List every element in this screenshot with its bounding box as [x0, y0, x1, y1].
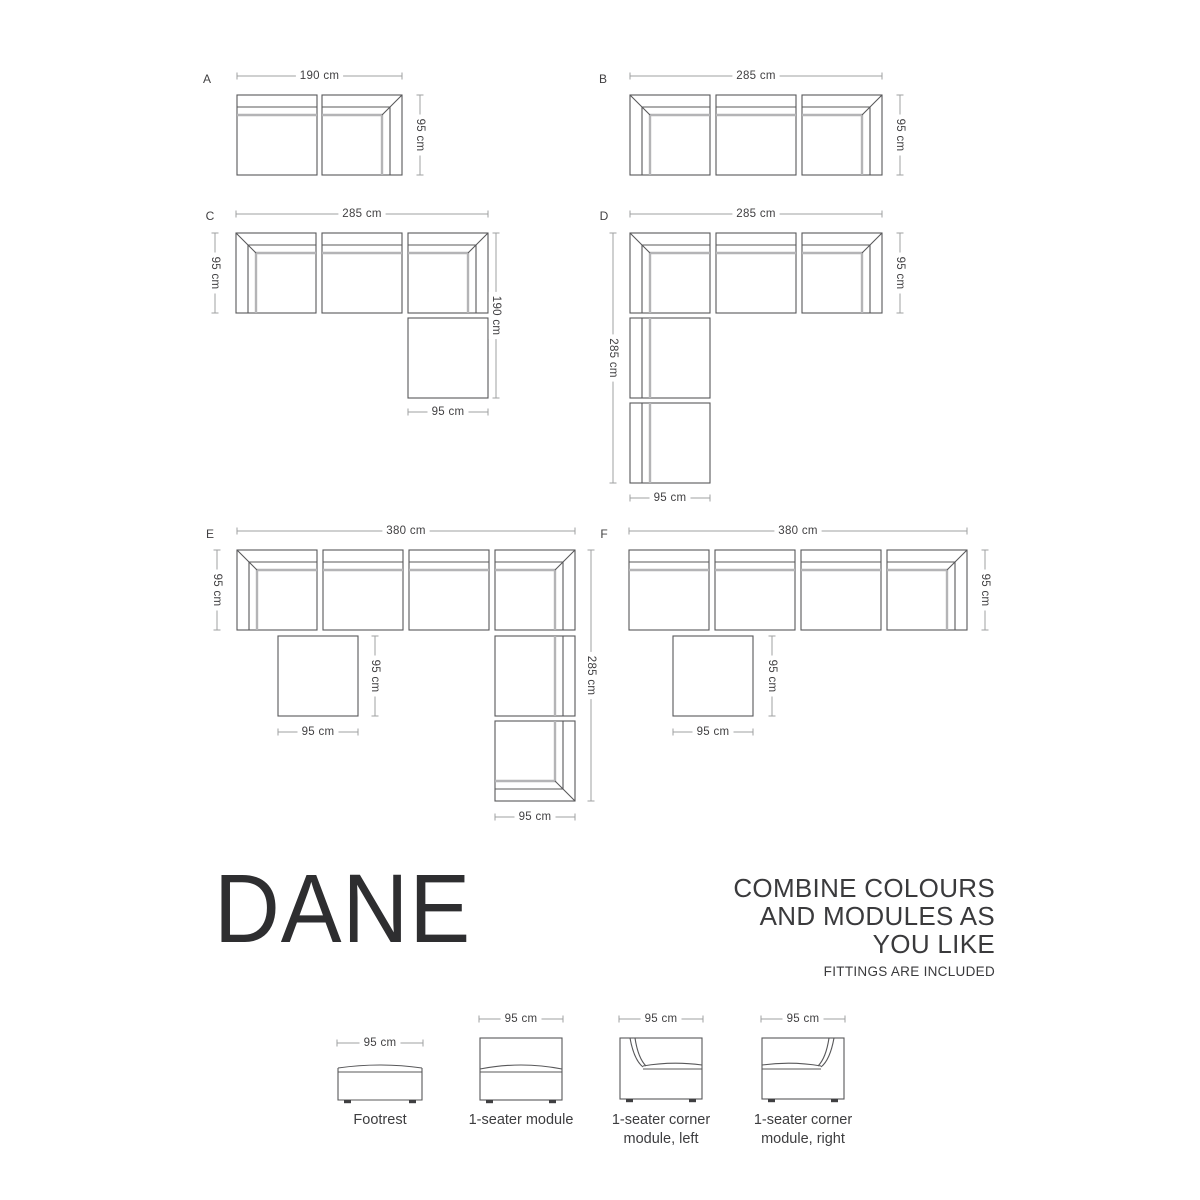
tagline-block: COMBINE COLOURS AND MODULES AS YOU LIKE … — [733, 874, 995, 980]
corner-module — [237, 550, 317, 630]
dane-module-sheet: A190 cm95 cmB285 cm95 cmC285 cm95 cm190 … — [0, 0, 1200, 1200]
config-label: F — [600, 527, 607, 541]
legend-label: 1-seater corner — [612, 1112, 710, 1128]
svg-text:95 cm: 95 cm — [211, 574, 223, 607]
dimension: 190 cm — [489, 233, 504, 398]
dimension: 380 cm — [629, 524, 967, 539]
corner-module — [630, 95, 710, 175]
seater-module — [630, 318, 710, 398]
footrest-module — [278, 636, 358, 716]
seater-module — [715, 550, 795, 630]
corner-module — [236, 233, 316, 313]
dimension: 95 cm — [208, 233, 223, 313]
dimension-label: 95 cm — [650, 491, 691, 506]
legend-label: 1-seater corner — [754, 1112, 852, 1128]
config-label: D — [600, 209, 609, 223]
svg-text:285 cm: 285 cm — [736, 70, 776, 82]
legend-item-corner-right: 95 cm1-seater cornermodule, right — [754, 1012, 852, 1148]
seater-module — [716, 233, 796, 313]
seater-module — [322, 233, 402, 313]
legend-label: Footrest — [353, 1112, 406, 1128]
dimension-label: 285 cm — [606, 334, 621, 381]
svg-text:95 cm: 95 cm — [654, 492, 687, 504]
dimension-label: 95 cm — [360, 1036, 401, 1051]
dimension: 95 cm — [978, 550, 993, 630]
tagline-line: YOU LIKE — [733, 930, 995, 958]
dimension-label: 95 cm — [641, 1012, 682, 1027]
dimension-label: 95 cm — [368, 656, 383, 697]
fittings-note: FITTINGS ARE INCLUDED — [733, 964, 995, 980]
dimension: 95 cm — [368, 636, 383, 716]
corner-module — [887, 550, 967, 630]
legend-item-seater: 95 cm1-seater module — [469, 1012, 574, 1129]
corner-module — [495, 550, 575, 630]
dimension-label: 190 cm — [489, 292, 504, 339]
dimension-label: 95 cm — [893, 253, 908, 294]
dimension: 95 cm — [495, 810, 575, 825]
svg-text:95 cm: 95 cm — [894, 119, 906, 152]
legend-item-footrest: 95 cmFootrest — [337, 1036, 423, 1129]
seater-module — [801, 550, 881, 630]
dimension-label: 285 cm — [338, 207, 385, 222]
dimension-label: 285 cm — [732, 69, 779, 84]
dimension-label: 380 cm — [382, 524, 429, 539]
config-label: C — [206, 209, 215, 223]
svg-text:95 cm: 95 cm — [697, 726, 730, 738]
svg-text:380 cm: 380 cm — [386, 525, 426, 537]
dimension-label: 95 cm — [893, 115, 908, 156]
dimension: 190 cm — [237, 69, 402, 84]
footrest-module — [673, 636, 753, 716]
dimension: 95 cm — [408, 405, 488, 420]
legend-item-corner-left: 95 cm1-seater cornermodule, left — [612, 1012, 710, 1148]
svg-text:95 cm: 95 cm — [432, 406, 465, 418]
svg-text:95 cm: 95 cm — [645, 1013, 678, 1025]
dimension-label: 95 cm — [210, 570, 225, 611]
config-A: A190 cm95 cm — [203, 69, 428, 176]
svg-text:95 cm: 95 cm — [364, 1037, 397, 1049]
svg-text:285 cm: 285 cm — [607, 338, 619, 378]
dimension-label: 95 cm — [978, 570, 993, 611]
dimension: 95 cm — [278, 725, 358, 740]
svg-text:95 cm: 95 cm — [787, 1013, 820, 1025]
seater-module — [716, 95, 796, 175]
corner-module — [408, 233, 488, 313]
dimension-label: 95 cm — [428, 405, 469, 420]
dimension: 285 cm — [236, 207, 488, 222]
dimension-label: 285 cm — [584, 652, 599, 699]
svg-text:285 cm: 285 cm — [342, 208, 382, 220]
svg-text:380 cm: 380 cm — [778, 525, 818, 537]
seater-module — [237, 95, 317, 175]
svg-text:95 cm: 95 cm — [766, 660, 778, 693]
svg-text:95 cm: 95 cm — [369, 660, 381, 693]
seater-module — [409, 550, 489, 630]
footrest-module — [408, 318, 488, 398]
config-B: B285 cm95 cm — [599, 69, 908, 176]
corner-module — [495, 721, 575, 801]
svg-text:285 cm: 285 cm — [585, 656, 597, 696]
config-D: D285 cm95 cm285 cm95 cm — [600, 207, 908, 506]
dimension-label: 190 cm — [296, 69, 343, 84]
config-E: E380 cm95 cm285 cm95 cm95 cm95 cm — [206, 524, 599, 825]
dimension-label: 95 cm — [693, 725, 734, 740]
svg-text:95 cm: 95 cm — [505, 1013, 538, 1025]
dimension-label: 95 cm — [298, 725, 339, 740]
svg-text:95 cm: 95 cm — [519, 811, 552, 823]
svg-text:285 cm: 285 cm — [736, 208, 776, 220]
dimension-label: 95 cm — [783, 1012, 824, 1027]
dimension: 95 cm — [210, 550, 225, 630]
svg-text:190 cm: 190 cm — [490, 296, 502, 336]
sofa-configuration-diagram: A190 cm95 cmB285 cm95 cmC285 cm95 cm190 … — [0, 0, 1200, 1200]
corner-module — [802, 95, 882, 175]
config-F: F380 cm95 cm95 cm95 cm — [600, 524, 992, 740]
dimension: 95 cm — [413, 95, 428, 175]
dimension: 95 cm — [619, 1012, 703, 1027]
dimension-label: 285 cm — [732, 207, 779, 222]
corner-module — [630, 233, 710, 313]
product-title: DANE — [214, 860, 471, 957]
dimension: 95 cm — [893, 233, 908, 313]
dimension: 380 cm — [237, 524, 575, 539]
dimension-label: 95 cm — [515, 810, 556, 825]
svg-text:95 cm: 95 cm — [209, 257, 221, 290]
dimension: 95 cm — [765, 636, 780, 716]
dimension: 285 cm — [606, 233, 621, 483]
seater-module — [323, 550, 403, 630]
dimension: 95 cm — [479, 1012, 563, 1027]
tagline-line: AND MODULES AS — [733, 902, 995, 930]
svg-text:95 cm: 95 cm — [894, 257, 906, 290]
svg-text:190 cm: 190 cm — [300, 70, 340, 82]
dimension: 95 cm — [337, 1036, 423, 1051]
config-label: A — [203, 72, 211, 86]
svg-text:95 cm: 95 cm — [979, 574, 991, 607]
dimension-label: 380 cm — [774, 524, 821, 539]
legend-label: module, left — [624, 1131, 699, 1147]
seater-module — [495, 636, 575, 716]
seater-module — [629, 550, 709, 630]
dimension-label: 95 cm — [413, 115, 428, 156]
dimension: 95 cm — [761, 1012, 845, 1027]
dimension: 95 cm — [893, 95, 908, 175]
svg-text:95 cm: 95 cm — [414, 119, 426, 152]
dimension: 285 cm — [630, 207, 882, 222]
seater-module — [630, 403, 710, 483]
config-label: B — [599, 72, 607, 86]
dimension-label: 95 cm — [208, 253, 223, 294]
dimension: 95 cm — [630, 491, 710, 506]
dimension-label: 95 cm — [765, 656, 780, 697]
legend-label: module, right — [761, 1131, 845, 1147]
tagline-line: COMBINE COLOURS — [733, 874, 995, 902]
dimension-label: 95 cm — [501, 1012, 542, 1027]
legend-label: 1-seater module — [469, 1112, 574, 1128]
dimension: 285 cm — [630, 69, 882, 84]
dimension: 285 cm — [584, 550, 599, 801]
corner-module — [802, 233, 882, 313]
dimension: 95 cm — [673, 725, 753, 740]
svg-text:95 cm: 95 cm — [302, 726, 335, 738]
config-label: E — [206, 527, 214, 541]
corner-module — [322, 95, 402, 175]
config-C: C285 cm95 cm190 cm95 cm — [206, 207, 504, 420]
